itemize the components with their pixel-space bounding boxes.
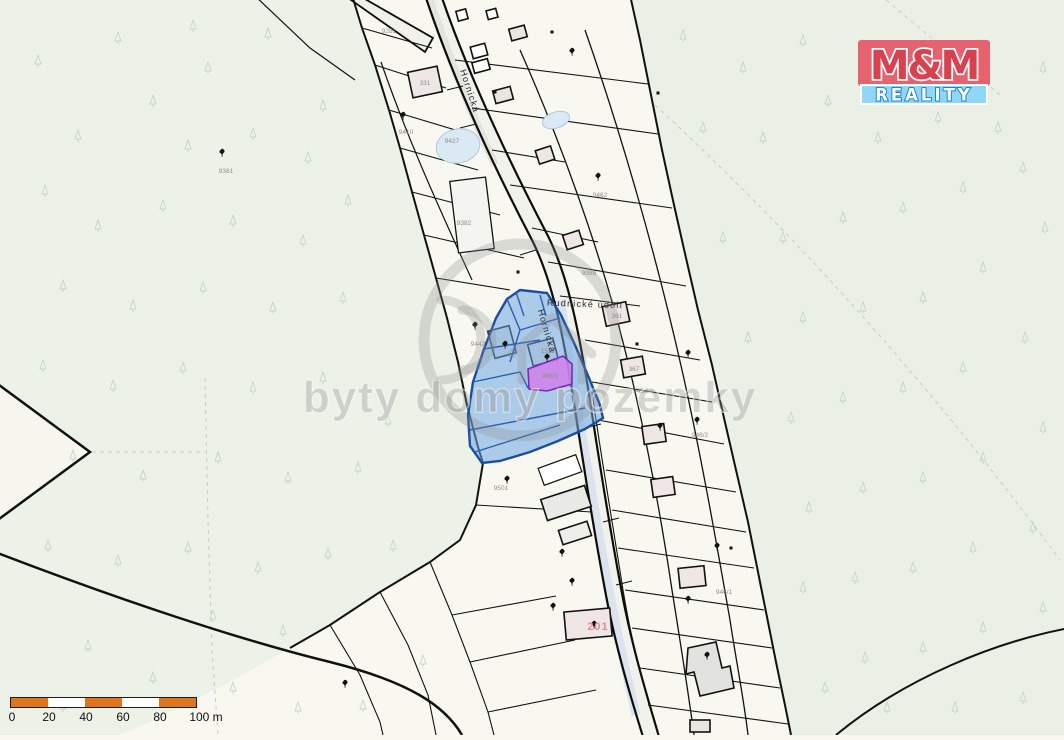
parcel-label: 9427 (445, 138, 460, 145)
parcel-label: 201 (587, 621, 608, 633)
parcel-label: 9410 (399, 129, 414, 136)
survey-mark-icon (657, 92, 660, 95)
survey-mark-icon (517, 271, 520, 274)
parcel-label: 9462 (593, 192, 608, 199)
cadastral-map-canvas: 928194109427938193829442946293881512945/… (0, 0, 1064, 735)
scale-label: 100 m (189, 710, 222, 724)
map-image[interactable]: 928194109427938193829442946293881512945/… (0, 0, 1064, 735)
scale-segment (48, 698, 85, 707)
mm-reality-logo: M&M REALITY (858, 40, 990, 106)
scale-segment (159, 698, 196, 707)
scale-segment (11, 698, 48, 707)
parcel-label: 9281 (382, 28, 397, 35)
survey-mark-icon (494, 91, 497, 94)
scale-label: 20 (42, 710, 55, 724)
survey-mark-icon (730, 547, 733, 550)
scale-segment (85, 698, 122, 707)
watermark-text: byty domy pozemky (303, 373, 758, 422)
map-scale-bar: 0 20 40 60 80 100 m (10, 697, 240, 731)
scale-label: 40 (79, 710, 92, 724)
parcel-label: 331 (420, 80, 431, 87)
parcel-label: 9501 (494, 485, 509, 492)
scale-label: 60 (116, 710, 129, 724)
scale-segment (122, 698, 159, 707)
survey-mark-icon (551, 31, 554, 34)
logo-mm-text: M&M (870, 43, 979, 89)
parcel-label: 9382 (457, 220, 472, 227)
logo-reality-text: REALITY (875, 86, 973, 105)
parcel-label: 946/2 (692, 432, 709, 439)
scale-label: 0 (9, 710, 16, 724)
scale-bar-segments (10, 697, 197, 708)
parcel-label: 946/1 (716, 589, 733, 596)
scale-label: 80 (153, 710, 166, 724)
survey-mark-icon (636, 343, 639, 346)
parcel-label: 9381 (219, 168, 234, 175)
cadastral-map-page: { "branding": { "logo_line1": "M&M", "lo… (0, 0, 1064, 735)
parcel-label: 367 (629, 366, 640, 373)
